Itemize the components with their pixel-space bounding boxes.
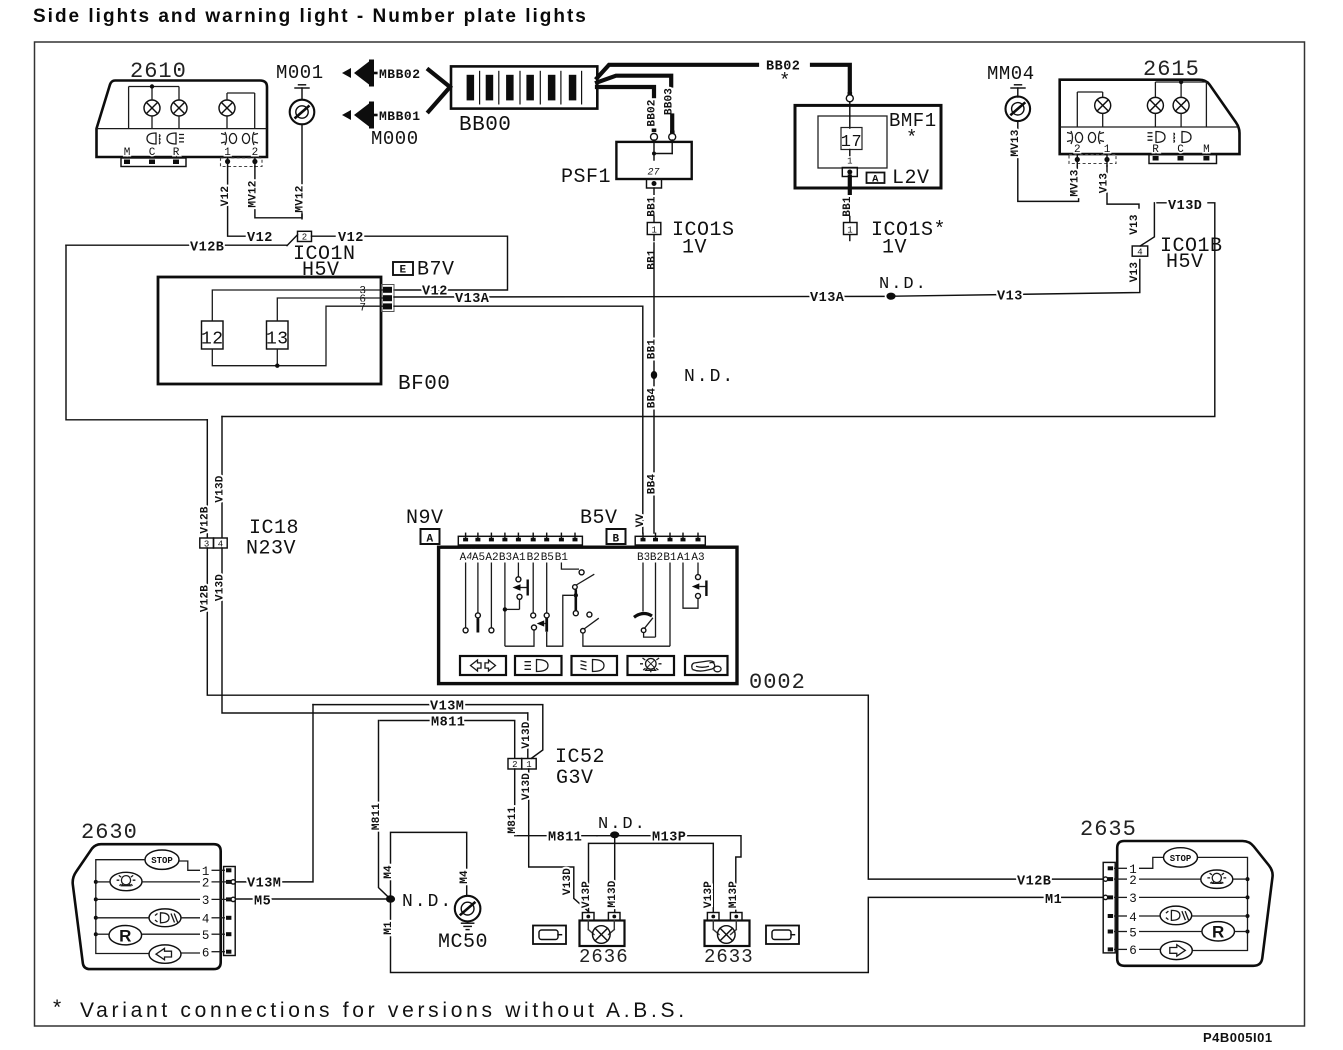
svg-text:V13: V13 <box>1098 173 1110 194</box>
svg-text:B2: B2 <box>650 552 663 564</box>
svg-text:N.D.: N.D. <box>879 275 928 294</box>
svg-text:*: * <box>53 996 61 1019</box>
svg-text:B7V: B7V <box>417 259 455 282</box>
svg-text:V12B: V12B <box>190 241 224 256</box>
svg-text:B2: B2 <box>527 552 540 564</box>
svg-text:2: 2 <box>302 233 307 243</box>
svg-text:V12B: V12B <box>200 506 212 533</box>
svg-text:N.D.: N.D. <box>402 892 453 912</box>
svg-text:BB4: BB4 <box>646 388 658 409</box>
svg-text:BB1: BB1 <box>842 196 854 217</box>
svg-text:MC50: MC50 <box>438 931 488 954</box>
svg-text:M13D: M13D <box>607 880 619 907</box>
svg-text:2615: 2615 <box>1143 57 1200 82</box>
svg-text:A1: A1 <box>677 552 691 564</box>
svg-text:0002: 0002 <box>749 670 806 695</box>
svg-text:4: 4 <box>1129 911 1137 925</box>
svg-text:1: 1 <box>847 226 852 236</box>
svg-text:4: 4 <box>202 912 210 926</box>
svg-text:MBB02: MBB02 <box>379 67 421 82</box>
svg-text:V13D: V13D <box>214 574 226 601</box>
svg-text:BB03: BB03 <box>664 88 676 115</box>
svg-text:V12: V12 <box>247 231 273 246</box>
svg-text:V13P: V13P <box>703 881 715 908</box>
svg-text:B: B <box>612 534 619 546</box>
svg-text:2630: 2630 <box>81 820 138 845</box>
svg-text:M1: M1 <box>383 921 395 935</box>
svg-text:V13D: V13D <box>562 868 574 895</box>
svg-text:BF00: BF00 <box>398 373 450 396</box>
svg-text:V13D: V13D <box>214 475 226 502</box>
svg-text:V13A: V13A <box>455 292 490 307</box>
svg-text:V13D: V13D <box>521 773 533 800</box>
svg-text:2635: 2635 <box>1080 817 1137 842</box>
svg-text:V12B: V12B <box>200 585 212 612</box>
svg-text:7: 7 <box>359 303 366 315</box>
svg-text:H5V: H5V <box>302 259 340 282</box>
svg-text:MV12: MV12 <box>247 180 259 207</box>
svg-text:A5: A5 <box>472 552 485 564</box>
svg-text:M811: M811 <box>507 806 519 833</box>
svg-text:5: 5 <box>202 929 210 943</box>
svg-text:MM04: MM04 <box>987 63 1035 85</box>
svg-text:M4: M4 <box>383 865 395 879</box>
svg-text:R: R <box>173 147 180 159</box>
svg-text:MV12: MV12 <box>295 185 307 212</box>
svg-text:A: A <box>426 534 433 546</box>
svg-text:MBB01: MBB01 <box>379 109 421 124</box>
svg-text:H5V: H5V <box>1166 251 1204 274</box>
svg-text:1: 1 <box>224 147 231 159</box>
svg-text:V13M: V13M <box>430 699 464 714</box>
svg-text:M1: M1 <box>1045 893 1062 908</box>
svg-text:C: C <box>149 147 156 159</box>
svg-text:M811: M811 <box>371 803 383 830</box>
svg-text:B1: B1 <box>663 552 677 564</box>
svg-text:V13: V13 <box>1129 214 1141 235</box>
svg-text:P4B005I01: P4B005I01 <box>1203 1030 1273 1045</box>
svg-text:Variant connections for versio: Variant connections for versions without… <box>80 999 688 1022</box>
svg-text:M001: M001 <box>276 62 324 84</box>
svg-text:BB1: BB1 <box>646 249 658 270</box>
svg-text:17: 17 <box>841 133 862 152</box>
svg-text:N9V: N9V <box>406 507 444 530</box>
svg-text:6: 6 <box>202 946 210 960</box>
svg-text:2: 2 <box>1129 874 1137 888</box>
svg-text:B1: B1 <box>555 552 569 564</box>
svg-text:V13M: V13M <box>247 877 281 892</box>
svg-text:MV13: MV13 <box>1070 169 1082 196</box>
svg-text:BB1: BB1 <box>646 339 658 360</box>
svg-text:V13P: V13P <box>581 881 593 908</box>
svg-text:1: 1 <box>847 157 852 167</box>
svg-text:BB00: BB00 <box>459 114 511 137</box>
svg-text:3: 3 <box>202 894 210 908</box>
svg-text:R: R <box>1212 922 1224 941</box>
svg-text:4: 4 <box>1137 248 1142 258</box>
svg-text:V12B: V12B <box>1017 874 1051 889</box>
svg-text:STOP: STOP <box>1170 854 1192 864</box>
svg-text:6: 6 <box>1129 944 1137 958</box>
svg-text:B3: B3 <box>499 552 512 564</box>
svg-text:BB02: BB02 <box>646 99 658 126</box>
svg-text:2636: 2636 <box>579 946 629 968</box>
svg-text:V13: V13 <box>1129 262 1141 283</box>
svg-text:2633: 2633 <box>704 946 754 968</box>
svg-text:*: * <box>779 70 791 92</box>
svg-text:PSF1: PSF1 <box>561 166 611 189</box>
svg-text:L2V: L2V <box>892 167 930 190</box>
svg-text:M811: M811 <box>548 831 582 846</box>
svg-text:12: 12 <box>201 330 224 350</box>
svg-text:V13: V13 <box>997 290 1023 305</box>
svg-text:STOP: STOP <box>151 856 173 866</box>
svg-text:V13D: V13D <box>521 721 533 748</box>
svg-text:2: 2 <box>252 147 259 159</box>
svg-text:1: 1 <box>651 226 656 236</box>
svg-text:Side lights and warning light: Side lights and warning light - Number p… <box>33 6 588 27</box>
svg-text:M4: M4 <box>459 870 471 884</box>
svg-text:A2: A2 <box>485 552 498 564</box>
svg-text:1V: 1V <box>682 237 707 260</box>
svg-text:N.D.: N.D. <box>684 367 735 387</box>
svg-text:13: 13 <box>266 330 289 350</box>
svg-text:2: 2 <box>202 877 210 891</box>
svg-text:N.D.: N.D. <box>598 815 647 834</box>
svg-text:BB1: BB1 <box>646 196 658 217</box>
svg-text:5: 5 <box>1129 926 1137 940</box>
svg-text:A3: A3 <box>691 552 704 564</box>
svg-text:M13P: M13P <box>728 881 740 908</box>
svg-text:R: R <box>119 926 131 945</box>
svg-text:N23V: N23V <box>246 538 296 561</box>
svg-text:*: * <box>906 127 918 149</box>
svg-text:A: A <box>872 174 879 186</box>
svg-text:MV13: MV13 <box>1010 129 1022 156</box>
svg-text:IC52: IC52 <box>555 746 605 769</box>
svg-text:BB4: BB4 <box>646 474 658 495</box>
svg-text:B5: B5 <box>541 552 554 564</box>
svg-text:A1: A1 <box>512 552 526 564</box>
svg-text:B5V: B5V <box>580 507 618 530</box>
svg-text:V13A: V13A <box>810 291 845 306</box>
svg-text:VV: VV <box>635 514 647 528</box>
svg-text:M: M <box>124 147 131 159</box>
svg-text:V12: V12 <box>220 186 232 206</box>
svg-text:E: E <box>399 265 406 277</box>
svg-text:M5: M5 <box>254 895 271 910</box>
svg-text:V13D: V13D <box>1168 199 1202 214</box>
svg-text:B3: B3 <box>637 552 650 564</box>
svg-text:1V: 1V <box>882 237 907 260</box>
svg-text:3: 3 <box>1129 892 1137 906</box>
svg-text:M000: M000 <box>371 128 419 150</box>
svg-text:27: 27 <box>648 168 660 179</box>
svg-text:M811: M811 <box>431 715 465 730</box>
svg-text:G3V: G3V <box>556 767 594 790</box>
